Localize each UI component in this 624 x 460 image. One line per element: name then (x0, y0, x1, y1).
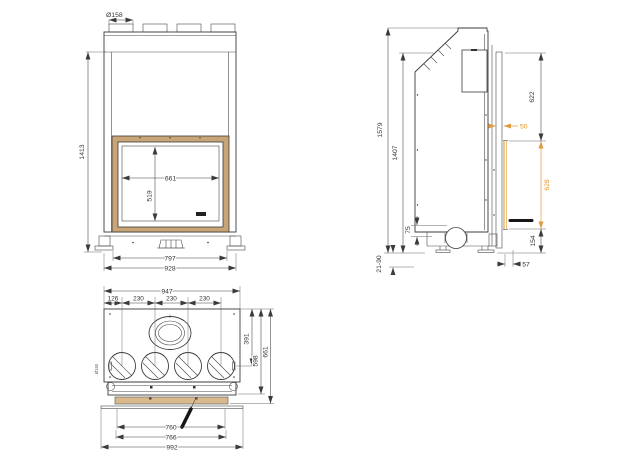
dim-label-spigot-spacing-3: 230 (199, 296, 210, 303)
dim-label-spigot-spacing-1: 230 (133, 296, 144, 303)
side-view-linework (415, 28, 532, 253)
dim-label-glass-width: 661 (165, 176, 177, 183)
dim-label-front-overall-height: 1413 (79, 144, 86, 159)
bottom-body-outline (104, 309, 240, 382)
dim-front-overall-height: 1413 (79, 52, 106, 252)
front-view-linework (95, 24, 245, 250)
dim-bottom-glass-inner: 760 (117, 409, 225, 431)
dim-label-leg-adjust: 21-90 (376, 255, 383, 273)
dim-label-flue-diameter: Ø158 (106, 12, 123, 19)
front-trim (101, 406, 243, 409)
dim-label-side-body-height: 1407 (392, 145, 399, 160)
dim-label-side-glass-height: 628 (544, 179, 551, 191)
side-rear-foot (436, 250, 450, 253)
dim-side-leg-adjust: 21-90 (376, 245, 414, 275)
dim-bottom-body-depth: 598 (238, 309, 265, 394)
dim-label-spigot-diameter: Ø150 (94, 363, 99, 374)
top-stub-4 (211, 24, 235, 32)
dim-label-base-height: 154 (530, 235, 537, 247)
dim-label-spigot-offset: 126 (108, 296, 119, 303)
dim-label-upper-front: 622 (529, 91, 536, 103)
dim-label-glass-outer: 766 (165, 434, 177, 441)
dim-front-flue-diameter: Ø158 (106, 12, 133, 25)
dim-label-frame-overlap: 50 (520, 124, 528, 131)
dim-front-feet-width: 797 (113, 251, 227, 263)
side-front-foot (478, 250, 494, 253)
door-rail (496, 52, 502, 248)
door-latch (196, 212, 206, 216)
glass-pane (118, 142, 223, 227)
front-right-leg (230, 236, 241, 246)
dim-label-air-inlet-height: 75 (405, 226, 412, 234)
dim-label-body-depth: 598 (253, 355, 260, 367)
dim-label-glass-height: 519 (147, 190, 154, 202)
dim-label-glass-inner: 760 (165, 424, 177, 431)
front-left-leg (99, 236, 110, 246)
glass-strip-top-view (115, 397, 228, 404)
top-stub-2 (143, 24, 167, 32)
dim-label-side-overall-height: 1579 (377, 122, 384, 137)
top-stub-1 (109, 24, 133, 32)
front-frame-band (108, 382, 236, 395)
flue-collar (149, 315, 191, 350)
side-view: 1579 1407 622 50 628 154 (376, 28, 551, 275)
dim-side-frame-overlap: 50 (488, 124, 528, 131)
dim-side-air-inlet-height: 75 (405, 216, 447, 246)
bottom-view: 947 126 230 230 230 Ø150 391 598 (94, 286, 274, 451)
dim-label-overall-depth: 661 (263, 346, 270, 358)
dim-bottom-spigot-spacing: 126 230 230 230 Ø150 (94, 296, 221, 375)
dim-label-front-clearance: 57 (522, 262, 530, 269)
dim-label-bottom-body-width: 947 (161, 288, 173, 295)
door-handle-bottom (182, 409, 191, 427)
fireplace-technical-drawing: Ø158 1413 661 519 797 928 (0, 0, 624, 460)
dim-label-feet-width: 797 (164, 256, 176, 263)
technical-drawing-canvas: Ø158 1413 661 519 797 928 (0, 0, 624, 460)
dim-label-flue-depth: 391 (244, 333, 251, 345)
dim-side-overall-height: 1579 (377, 28, 458, 253)
control-box (462, 50, 487, 92)
bottom-view-linework (101, 309, 243, 427)
dim-label-spigot-spacing-2: 230 (166, 296, 177, 303)
dim-side-body-height: 1407 (392, 53, 434, 253)
dim-label-front-trim: 992 (166, 444, 178, 451)
dim-label-front-body-width: 928 (164, 266, 176, 273)
dim-side-glass-height: 628 (509, 141, 551, 229)
dim-side-base-height: 154 (497, 229, 546, 253)
top-stub-3 (177, 24, 201, 32)
front-view: Ø158 1413 661 519 797 928 (79, 12, 245, 273)
dim-bottom-glass-outer: 766 (116, 430, 226, 441)
convection-spigots (109, 353, 236, 380)
combustion-air-inlet (446, 228, 467, 249)
